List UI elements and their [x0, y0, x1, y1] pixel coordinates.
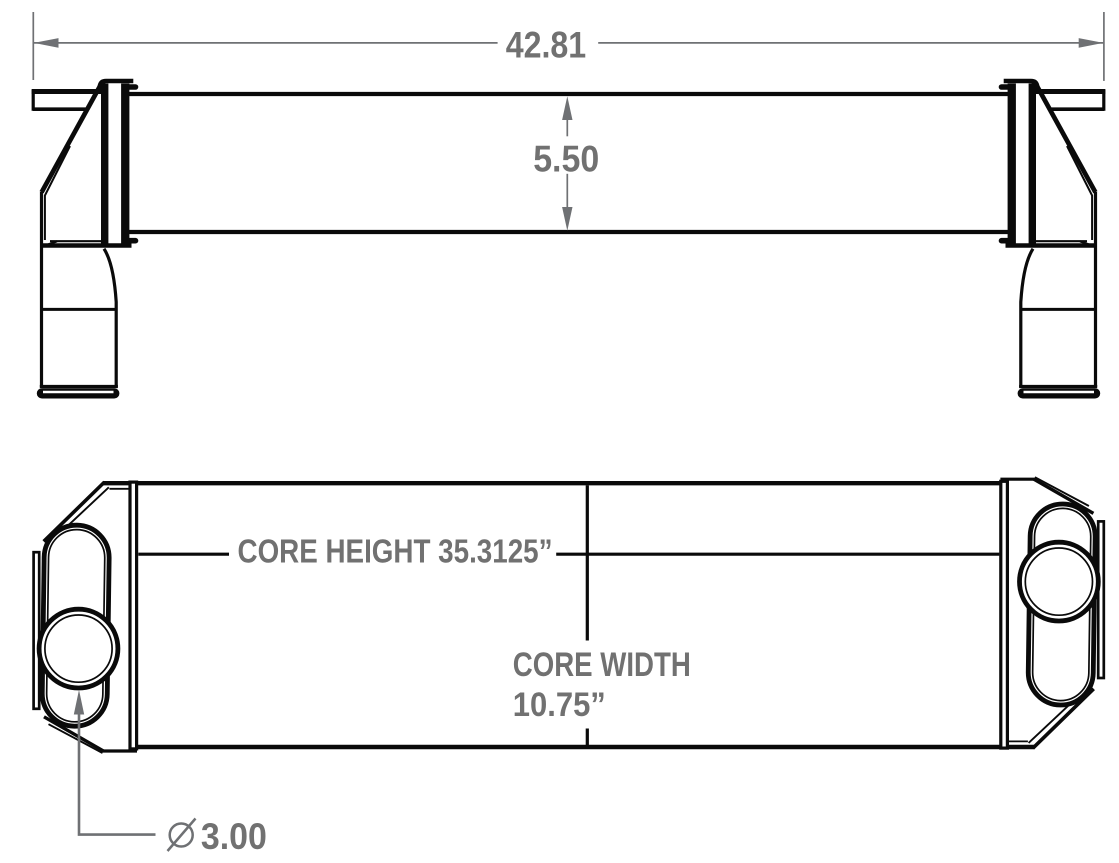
svg-text:10.75”: 10.75” [513, 686, 606, 724]
svg-text:42.81: 42.81 [506, 25, 587, 66]
svg-text:5.50: 5.50 [533, 139, 599, 180]
svg-text:3.00: 3.00 [201, 816, 267, 857]
svg-text:CORE WIDTH: CORE WIDTH [513, 646, 691, 684]
svg-text:CORE HEIGHT 35.3125”: CORE HEIGHT 35.3125” [238, 532, 553, 569]
